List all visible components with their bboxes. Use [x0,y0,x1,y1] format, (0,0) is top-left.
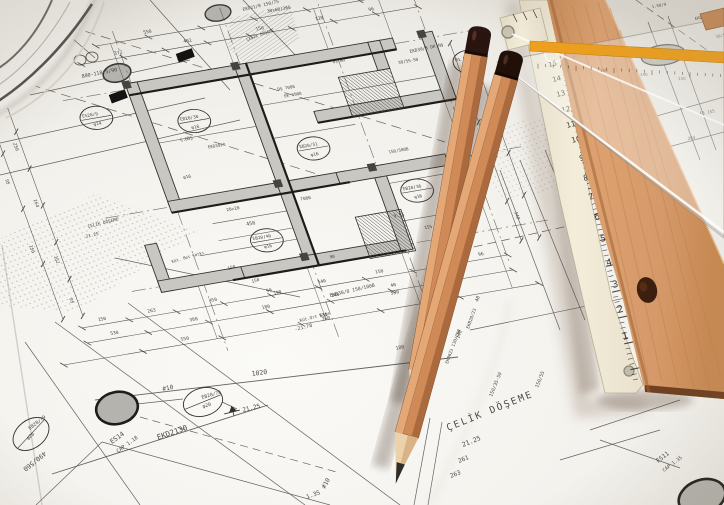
blueprint-photo: EB20/30φ16EB20/31φ16EB20/36φ16ES20/9φ14M… [0,0,724,505]
photo-canvas: EB20/30φ16EB20/31φ16EB20/36φ16ES20/9φ14M… [0,0,724,505]
vignette [0,0,724,505]
